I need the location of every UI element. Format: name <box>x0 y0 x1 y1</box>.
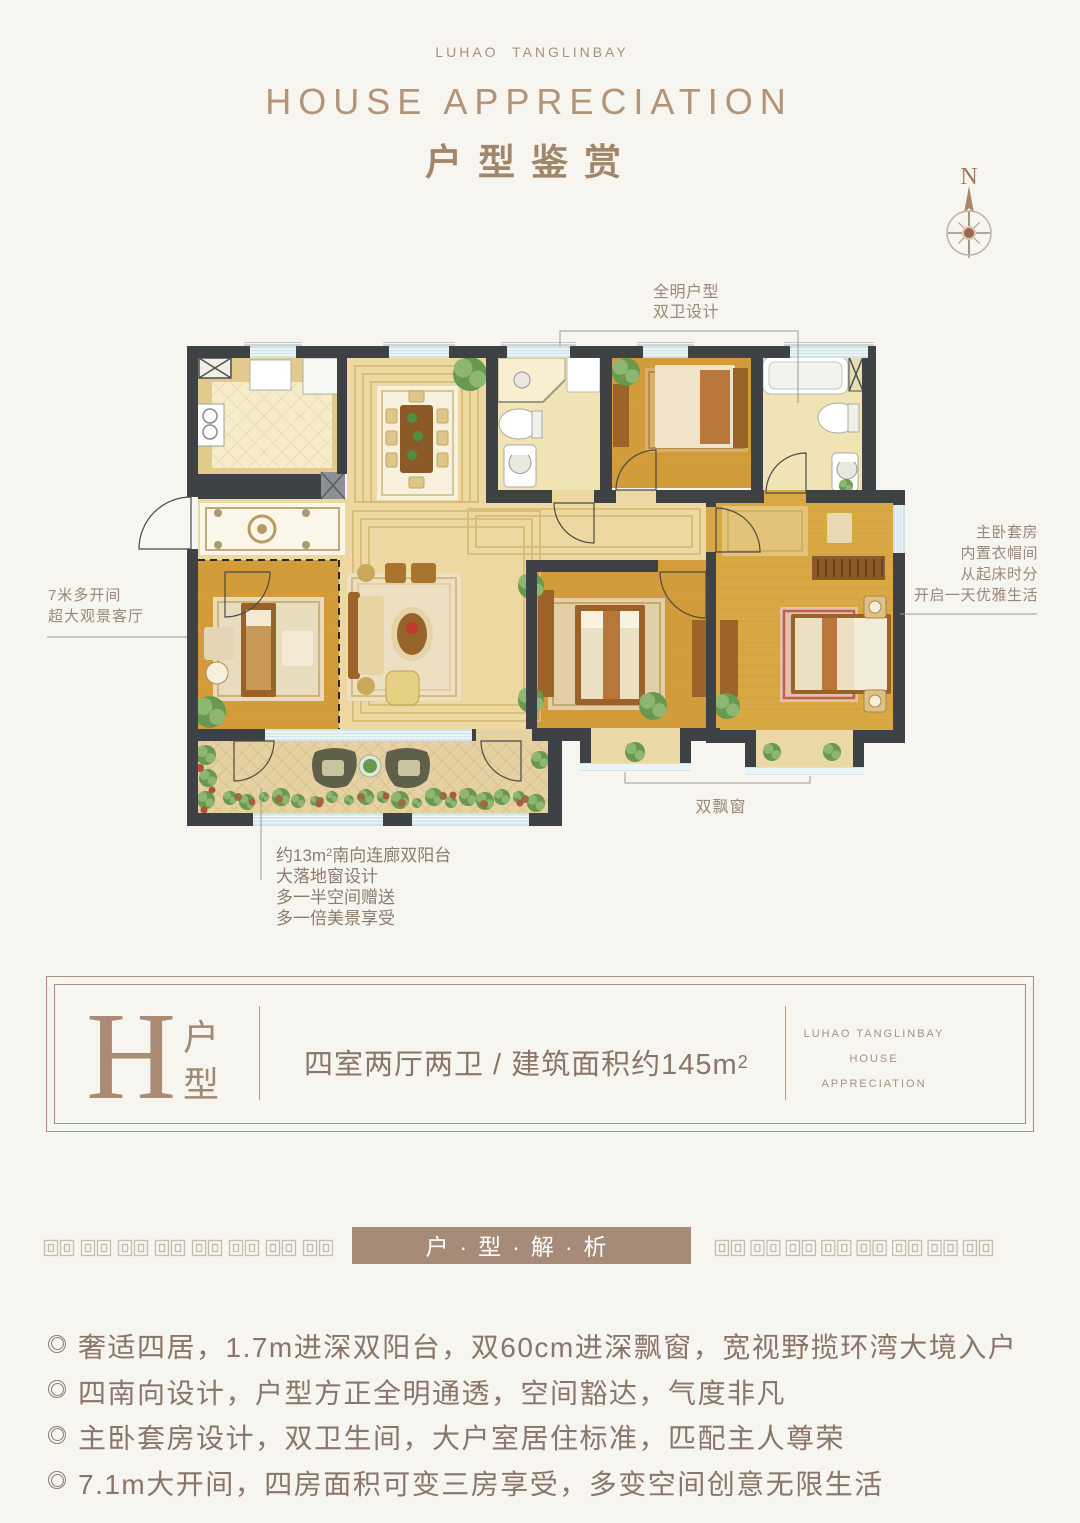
svg-text:从起床时分: 从起床时分 <box>960 566 1038 583</box>
svg-text:主卧套房: 主卧套房 <box>976 524 1038 541</box>
svg-text:开启一天优雅生活: 开启一天优雅生活 <box>914 587 1038 604</box>
svg-text:多一半空间赠送: 多一半空间赠送 <box>276 888 395 907</box>
svg-text:内置衣帽间: 内置衣帽间 <box>960 545 1038 562</box>
svg-text:约13m2南向连廊双阳台: 约13m2南向连廊双阳台 <box>276 846 451 865</box>
svg-text:大落地窗设计: 大落地窗设计 <box>276 867 378 886</box>
svg-text:超大观景客厅: 超大观景客厅 <box>48 608 144 625</box>
svg-text:7米多开间: 7米多开间 <box>48 587 121 604</box>
svg-text:双卫设计: 双卫设计 <box>653 303 719 321</box>
svg-text:多一倍美景享受: 多一倍美景享受 <box>276 909 395 928</box>
svg-text:全明户型: 全明户型 <box>653 283 719 301</box>
svg-text:双飘窗: 双飘窗 <box>695 798 746 816</box>
